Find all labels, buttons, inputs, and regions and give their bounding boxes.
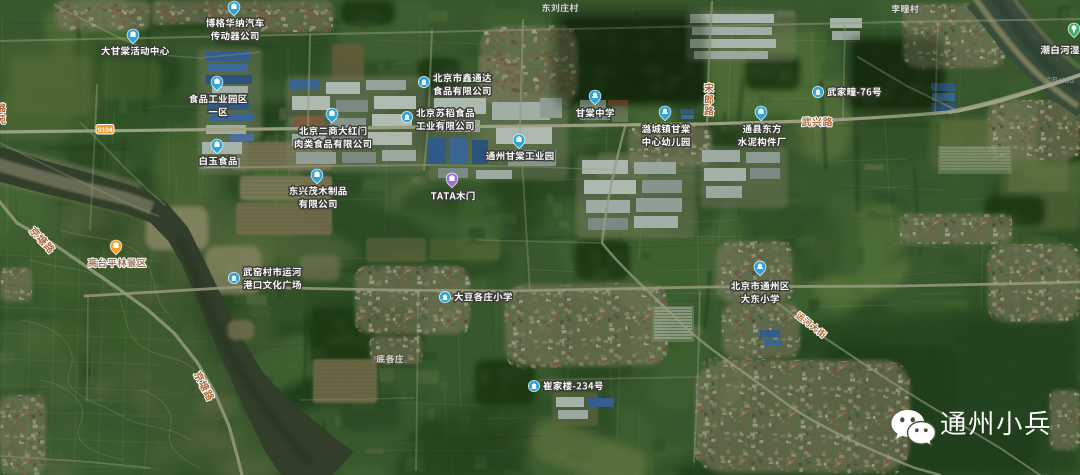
svg-text:©Baidu: ©Baidu bbox=[1046, 75, 1074, 85]
svg-text:S104: S104 bbox=[98, 127, 113, 134]
